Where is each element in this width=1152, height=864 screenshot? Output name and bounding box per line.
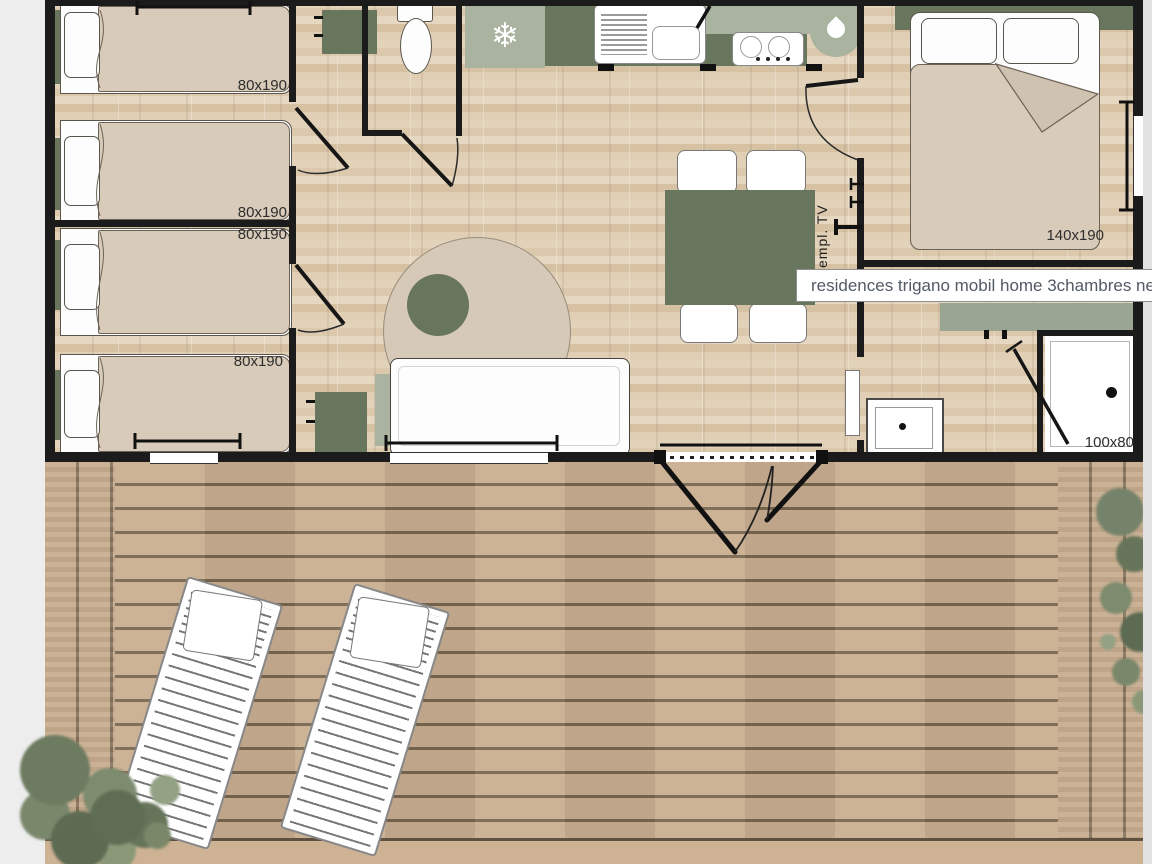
pillow <box>64 370 100 438</box>
single-bed-duvet <box>98 356 290 452</box>
cabinet-leg <box>984 330 989 339</box>
floorplan-screenshot: ❄ <box>0 0 1152 864</box>
single-bed-duvet <box>98 230 290 334</box>
shower-tray-edge <box>1050 341 1130 447</box>
tree <box>1078 478 1152 728</box>
wardrobe <box>315 392 367 454</box>
lounger-pillow <box>349 596 430 668</box>
pillow <box>64 136 100 206</box>
wardrobe <box>322 10 377 54</box>
entrance-threshold-dashes <box>660 456 822 459</box>
wall-bedroom <box>289 0 296 102</box>
stove-burner <box>768 36 790 58</box>
sink-drainer <box>601 11 647 55</box>
wall-wc <box>362 130 402 136</box>
bed-size-label: 80x190 <box>225 204 287 221</box>
wall-hall <box>857 158 864 267</box>
window-gap <box>390 452 548 464</box>
bathroom-cabinet <box>940 303 1136 331</box>
bed-size-label: 80x190 <box>221 353 283 370</box>
tree-foliage <box>1096 488 1144 536</box>
sofa-armrest <box>377 374 390 446</box>
sink-basin <box>652 26 700 60</box>
shower-size-label: 100x80 <box>1058 434 1134 451</box>
cabinet-leg <box>1002 330 1007 339</box>
pillow <box>64 244 100 310</box>
bed-size-label: 80x190 <box>225 226 287 243</box>
wall-wc <box>456 0 462 136</box>
pillow <box>921 18 997 64</box>
wall-bath <box>857 440 864 452</box>
bush-foliage <box>20 735 90 805</box>
fridge-snowflake-icon: ❄ <box>465 6 545 68</box>
bush <box>0 715 240 864</box>
wall-left <box>45 0 55 462</box>
window-gap <box>150 452 218 464</box>
wall-master-bottom <box>857 260 1143 267</box>
dining-chair <box>677 150 737 194</box>
dining-chair <box>680 303 738 343</box>
wall-bedroom <box>289 166 296 264</box>
sofa-seat-line <box>398 366 620 446</box>
stove-knob <box>766 57 770 61</box>
stove-knob <box>786 57 790 61</box>
stove-knob <box>776 57 780 61</box>
shower-drain <box>1106 387 1117 398</box>
pouf <box>407 274 469 336</box>
wall-right <box>1133 0 1143 462</box>
lounger-pillow <box>182 589 263 661</box>
master-duvet <box>910 64 1100 250</box>
pillow <box>64 12 100 78</box>
wall-top <box>45 0 1143 6</box>
washbasin-faucet <box>899 423 906 430</box>
page-margin-right <box>1143 0 1152 864</box>
wall-bedroom <box>289 328 296 452</box>
dining-chair <box>749 303 807 343</box>
pillow <box>1003 18 1079 64</box>
toilet-bowl <box>400 18 432 74</box>
bush-foliage <box>90 790 145 845</box>
wall-hall <box>857 0 864 78</box>
wall-shower <box>1037 330 1043 452</box>
stove-knob <box>756 57 760 61</box>
dining-chair <box>746 150 806 194</box>
tooltip: residences trigano mobil home 3chambres … <box>796 269 1152 302</box>
tv-location-label: empl. TV <box>814 168 846 268</box>
bathroom-door-leaf <box>845 370 860 436</box>
wall-shower <box>1037 330 1143 336</box>
bed-size-label: 80x190 <box>225 77 287 94</box>
bed-size-label: 140x190 <box>1024 227 1104 244</box>
dining-table <box>665 190 815 305</box>
stove-burner <box>740 36 762 58</box>
wall-wc <box>362 0 368 136</box>
